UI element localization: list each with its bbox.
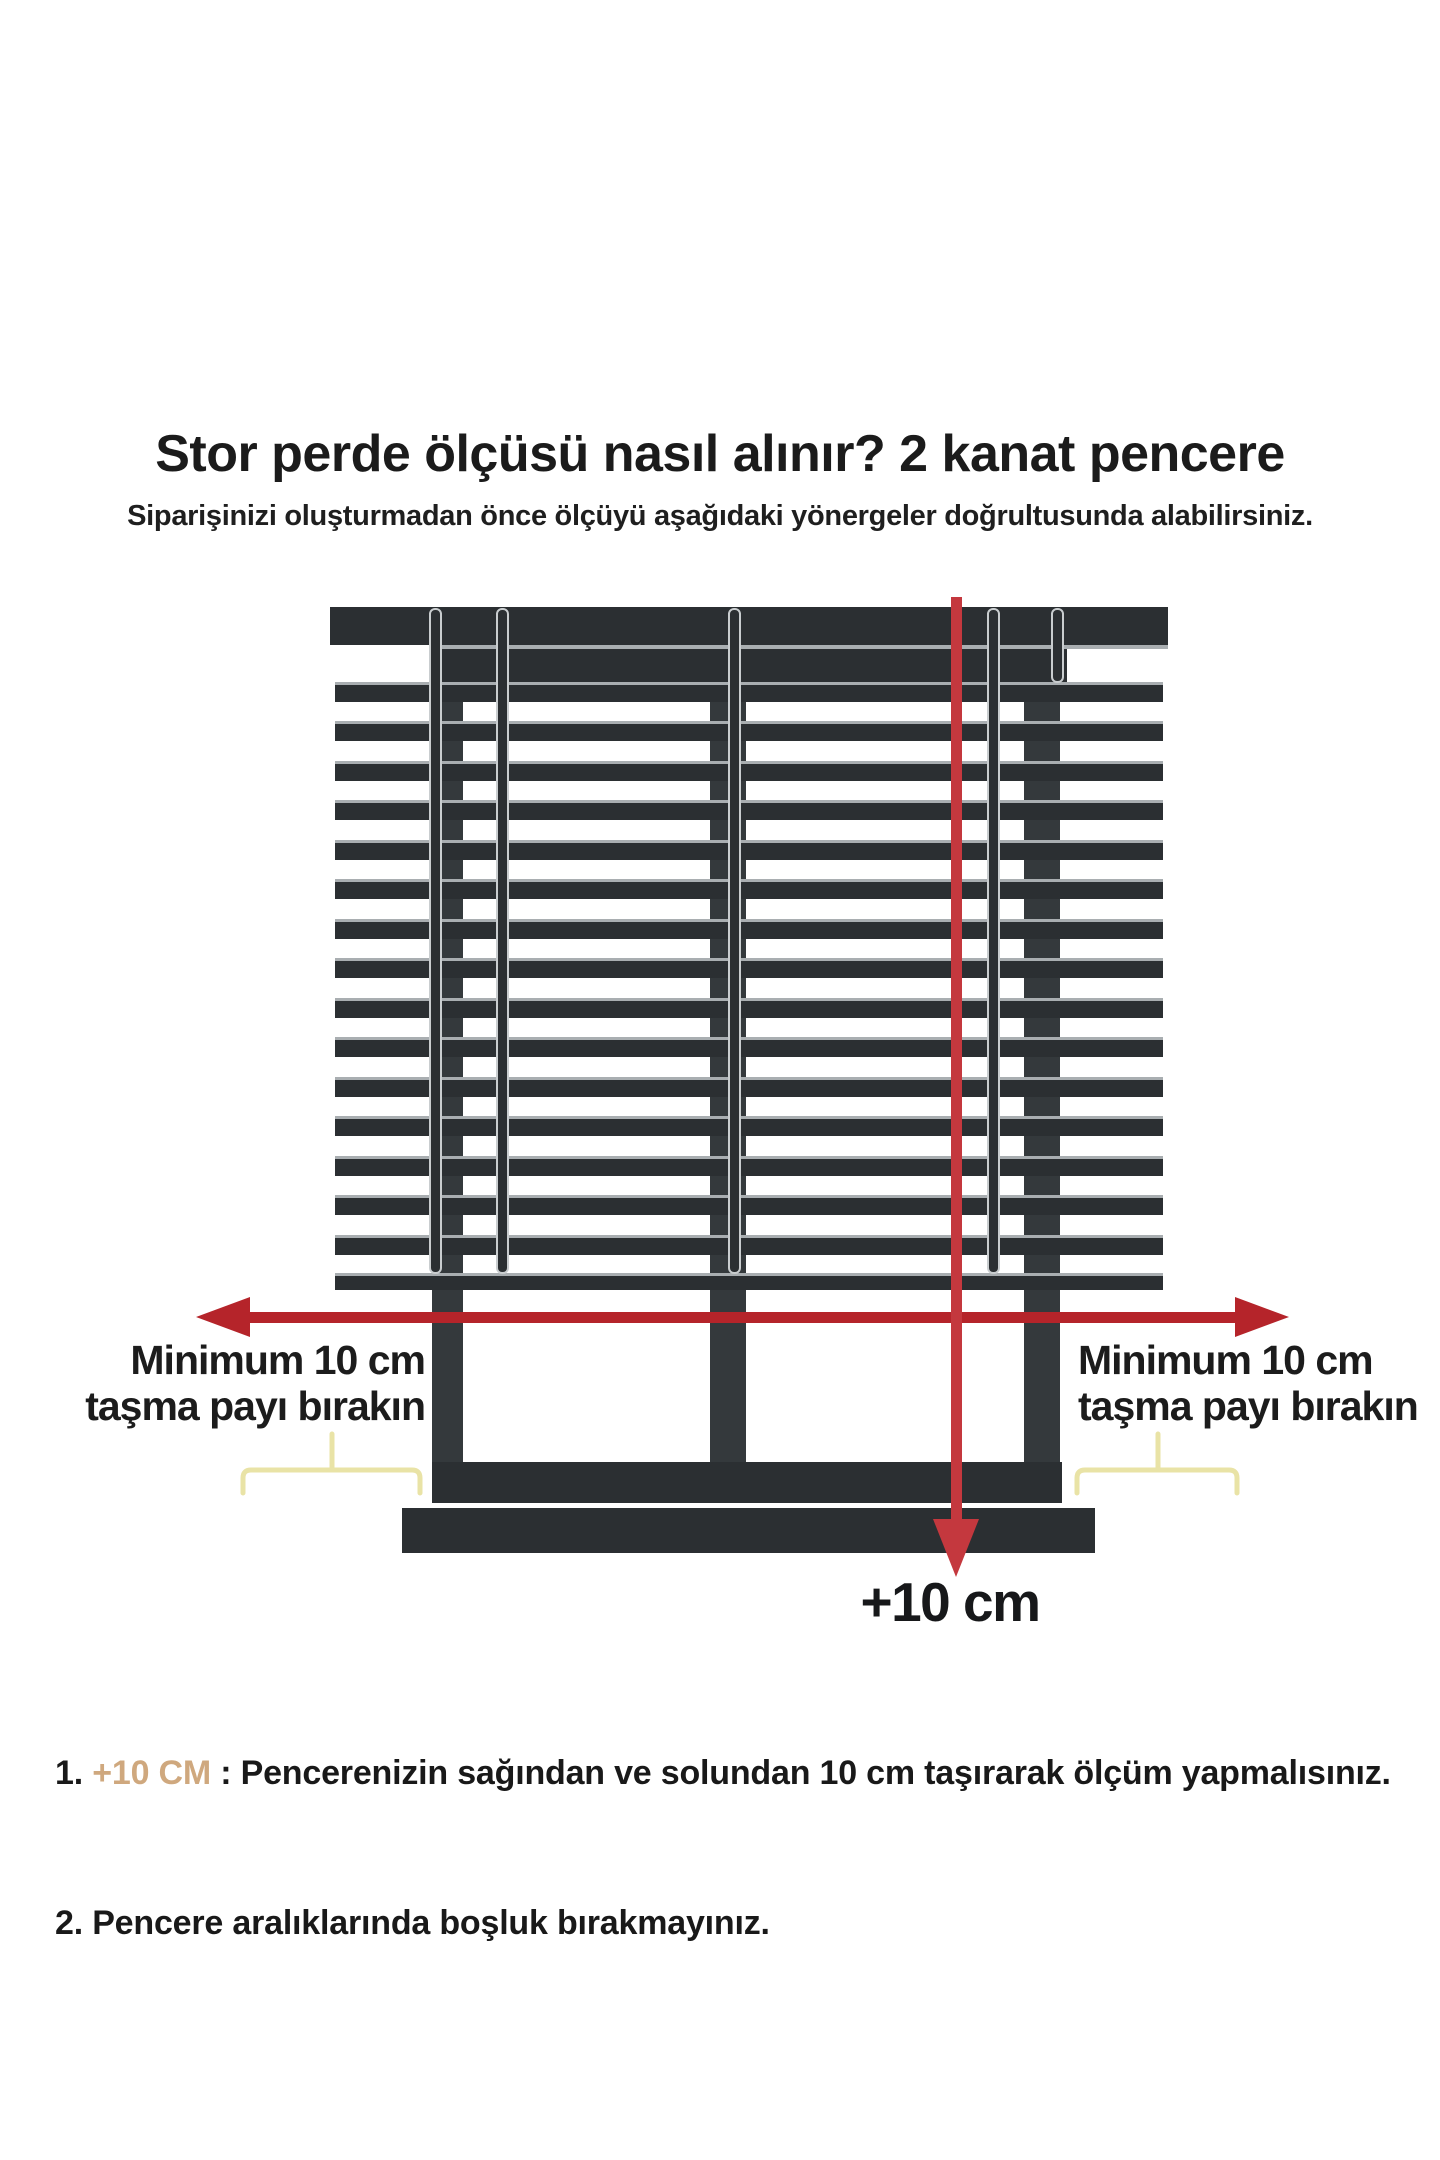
- lift-cord: [497, 609, 508, 1273]
- measurement-notes: 1. +10 CM : Pencerenizin sağından ve sol…: [55, 1648, 1415, 1998]
- width-arrow-right-head: [1235, 1297, 1289, 1337]
- right-overhang-label-line1: Minimum 10 cm: [1078, 1337, 1440, 1383]
- left-overhang-label-line2: taşma payı bırakın: [60, 1383, 425, 1429]
- note-item-2: 2. Pencere aralıklarında boşluk bırakmay…: [55, 1898, 1415, 1948]
- note-2-number: 2.: [55, 1904, 92, 1942]
- height-arrow-label: +10 cm: [830, 1570, 1070, 1634]
- blind-headbox: [433, 645, 1067, 682]
- height-arrow-line: [951, 597, 962, 1522]
- left-overhang-label-line1: Minimum 10 cm: [60, 1337, 425, 1383]
- note-item-1: 1. +10 CM : Pencerenizin sağından ve sol…: [55, 1748, 1415, 1798]
- right-overhang-label-line2: taşma payı bırakın: [1078, 1383, 1440, 1429]
- blind-headrail: [330, 607, 1168, 645]
- note-2-text: Pencere aralıklarında boşluk bırakmayını…: [92, 1904, 770, 1942]
- lift-cord: [430, 609, 441, 1273]
- left-overhang-brace: [243, 1434, 420, 1493]
- width-arrow-left-head: [196, 1297, 250, 1337]
- lift-cord: [729, 609, 740, 1273]
- lift-cord-hook: [1052, 609, 1063, 682]
- left-overhang-label: Minimum 10 cm taşma payı bırakın: [60, 1337, 425, 1429]
- window-sill: [402, 1508, 1095, 1553]
- note-1-number: 1.: [55, 1754, 92, 1792]
- lift-cord: [988, 609, 999, 1273]
- blind-slats: [335, 682, 1163, 1255]
- note-1-text: : Pencerenizin sağından ve solundan 10 c…: [211, 1754, 1391, 1792]
- right-overhang-label: Minimum 10 cm taşma payı bırakın: [1078, 1337, 1440, 1429]
- window-bottom-rail: [432, 1462, 1062, 1503]
- right-overhang-brace: [1077, 1434, 1237, 1493]
- width-arrow-line: [248, 1312, 1238, 1323]
- note-1-highlight: +10 CM: [92, 1754, 211, 1792]
- bottom-rail-highlight: [335, 1273, 1163, 1276]
